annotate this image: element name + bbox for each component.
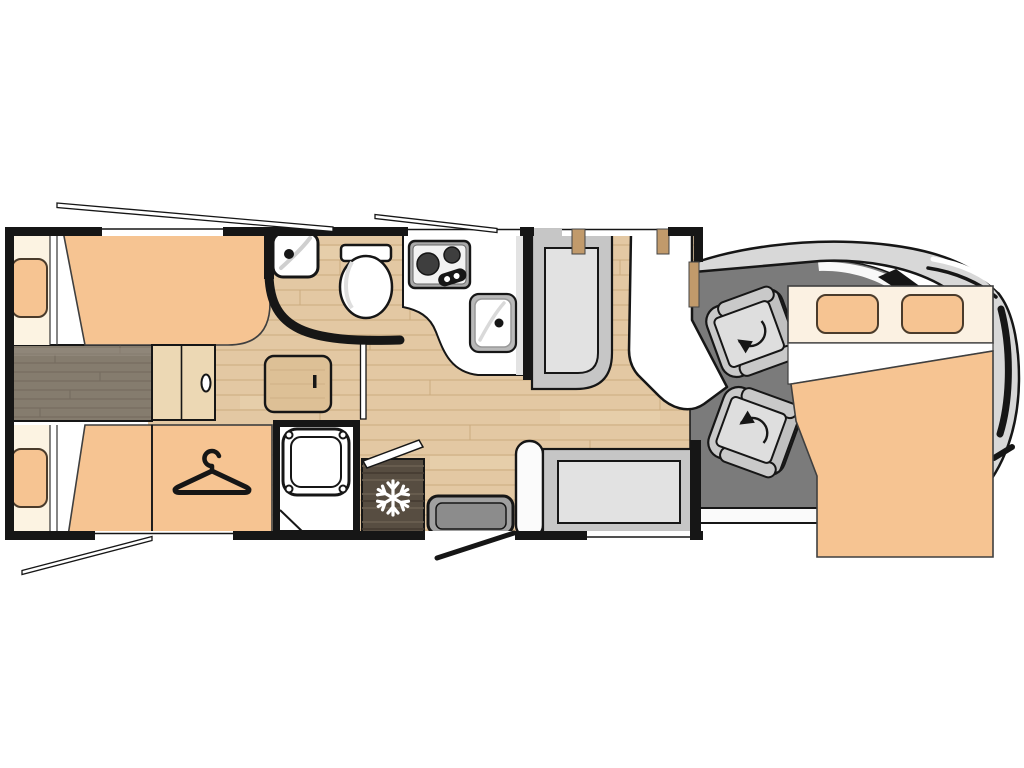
cab-body-sill (694, 508, 824, 523)
window-trim (657, 229, 669, 254)
faucet-dot-icon (495, 319, 504, 328)
floorplan-canvas (0, 0, 1024, 768)
toilet (340, 245, 392, 318)
open-window-pane (22, 537, 152, 575)
dinette-bench-front (532, 233, 612, 389)
washroom-basin (273, 233, 318, 277)
stove (409, 241, 470, 288)
wardrobe (152, 425, 272, 536)
shower (277, 424, 357, 536)
burner-icon (444, 247, 460, 263)
washroom-door-open (361, 344, 367, 419)
motorhome-floorplan (0, 0, 1024, 768)
kitchen-sink (470, 294, 516, 352)
faucet-dot-icon (284, 249, 294, 259)
nightstand-handle (313, 375, 317, 388)
dinette-bench-side (543, 449, 695, 535)
pillow-front-bed (902, 295, 963, 333)
pillow-bottom-bed (12, 449, 47, 507)
pillow-front-bed (817, 295, 878, 333)
bed-mattress (791, 351, 993, 557)
nightstand (265, 356, 331, 412)
entrance (428, 496, 513, 534)
cab-doorway-trim (689, 262, 699, 307)
burner-icon (417, 253, 439, 275)
drop-down-bed (788, 286, 993, 557)
single-bed-top (63, 231, 270, 345)
drawer-handle (202, 375, 211, 392)
bed-step-unit (152, 345, 215, 420)
bench-side-panel (516, 441, 543, 538)
window-bench (587, 531, 693, 540)
rear-walkway-floor (9, 345, 152, 421)
pillow-top-bed (12, 259, 47, 317)
rear-wall (5, 227, 14, 540)
window-bottom-bed (95, 531, 233, 540)
dinette-partition (523, 227, 532, 380)
cab-doorway-post (690, 440, 701, 540)
window-trim (572, 229, 585, 254)
